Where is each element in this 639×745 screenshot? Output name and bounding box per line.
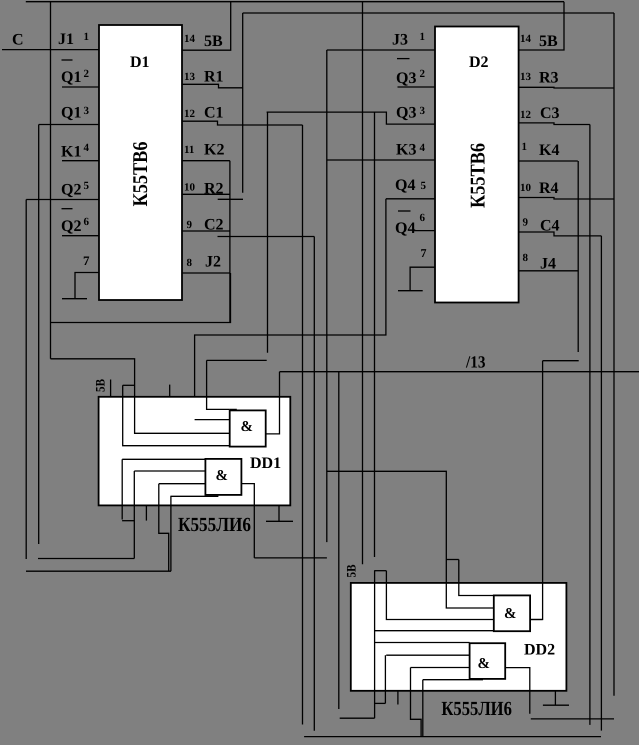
svg-text:К55ТВ6: К55ТВ6: [128, 142, 152, 207]
svg-text:10: 10: [520, 182, 532, 194]
svg-text:&: &: [241, 419, 254, 435]
svg-text:Q4: Q4: [395, 177, 415, 194]
svg-text:5B: 5B: [204, 33, 223, 50]
svg-text:6: 6: [84, 216, 90, 228]
svg-text:8: 8: [523, 252, 529, 264]
svg-text:Q1: Q1: [61, 69, 81, 86]
svg-text:J2: J2: [205, 254, 221, 271]
svg-text:C3: C3: [540, 105, 560, 122]
svg-text:12: 12: [184, 108, 196, 120]
svg-text:R4: R4: [539, 180, 559, 197]
svg-text:5: 5: [84, 180, 90, 192]
svg-text:R1: R1: [204, 69, 224, 86]
svg-text:Q4: Q4: [395, 220, 415, 237]
svg-text:7: 7: [83, 253, 90, 268]
svg-text:11: 11: [184, 144, 194, 156]
svg-text:4: 4: [84, 142, 90, 154]
svg-text:9: 9: [523, 217, 529, 229]
svg-text:1: 1: [522, 141, 528, 153]
svg-text:&: &: [216, 468, 229, 484]
svg-text:10: 10: [184, 182, 196, 194]
svg-text:13: 13: [520, 71, 532, 83]
svg-text:D1: D1: [130, 54, 150, 71]
svg-text:12: 12: [520, 109, 532, 121]
svg-text:6: 6: [420, 212, 426, 224]
svg-text:R3: R3: [539, 70, 559, 87]
svg-text:K3: K3: [396, 142, 416, 159]
svg-text:K1: K1: [61, 144, 81, 161]
svg-text:13: 13: [184, 71, 196, 83]
svg-text:Q2: Q2: [61, 182, 81, 199]
svg-text:14: 14: [184, 33, 196, 45]
svg-text:J1: J1: [58, 31, 74, 48]
svg-text:5: 5: [421, 180, 427, 192]
svg-text:2: 2: [84, 68, 90, 80]
svg-text:2: 2: [420, 68, 426, 80]
svg-text:9: 9: [187, 219, 193, 231]
svg-text:Q2: Q2: [61, 218, 81, 235]
svg-text:&: &: [478, 656, 491, 672]
svg-text:DD2: DD2: [524, 642, 555, 659]
svg-text:5В: 5В: [344, 564, 359, 577]
svg-text:3: 3: [420, 105, 426, 117]
svg-text:D2: D2: [469, 54, 489, 71]
svg-text:K4: K4: [539, 142, 559, 159]
svg-text:C1: C1: [204, 105, 224, 122]
svg-text:14: 14: [520, 33, 532, 45]
svg-text:4: 4: [420, 142, 426, 154]
svg-text:DD1: DD1: [250, 455, 281, 472]
svg-text:J4: J4: [540, 256, 556, 273]
svg-text:К555ЛИ6: К555ЛИ6: [441, 698, 512, 720]
svg-text:/13: /13: [465, 353, 485, 372]
svg-text:J3: J3: [392, 32, 408, 49]
svg-text:7: 7: [421, 246, 427, 260]
svg-text:8: 8: [187, 257, 193, 269]
svg-text:К55ТВ6: К55ТВ6: [466, 143, 490, 208]
svg-text:5В: 5В: [93, 379, 108, 392]
svg-text:C: C: [12, 32, 24, 49]
svg-text:5B: 5B: [539, 33, 558, 50]
svg-text:K2: K2: [204, 142, 224, 159]
svg-text:1: 1: [420, 31, 426, 43]
svg-text:Q1: Q1: [61, 105, 81, 122]
svg-text:3: 3: [84, 105, 90, 117]
svg-text:Q3: Q3: [396, 70, 416, 87]
svg-text:К555ЛИ6: К555ЛИ6: [178, 514, 251, 536]
svg-text:&: &: [504, 606, 517, 622]
svg-text:1: 1: [84, 31, 90, 43]
svg-text:Q3: Q3: [396, 105, 416, 122]
